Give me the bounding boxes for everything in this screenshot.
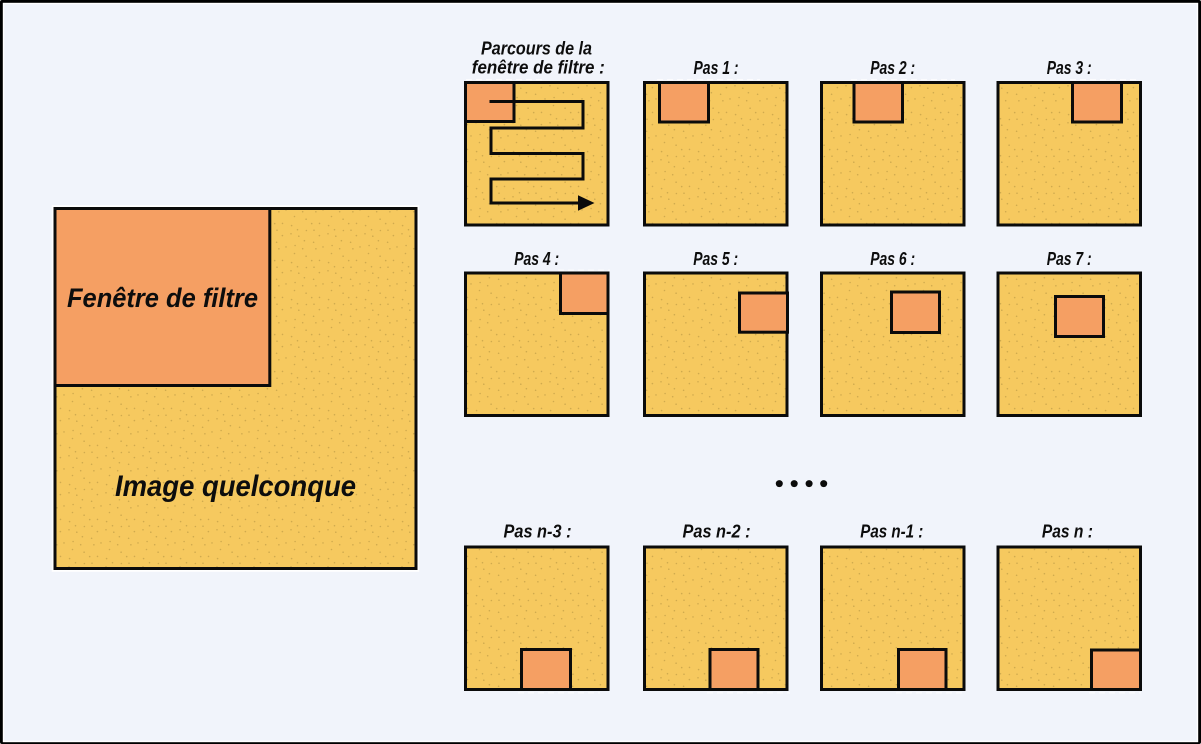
svg-text:Pas n-2 :: Pas n-2 : [683,521,751,542]
svg-text:Pas 3 :: Pas 3 : [1047,57,1092,78]
svg-text:Pas 7 :: Pas 7 : [1047,248,1092,269]
svg-text:Parcours de la: Parcours de la [481,38,592,59]
svg-text:Pas 4 :: Pas 4 : [514,248,559,269]
svg-text:fenêtre de filtre :: fenêtre de filtre : [472,57,605,78]
svg-text:Pas 1 :: Pas 1 : [694,57,739,78]
svg-text:Fenêtre de filtre: Fenêtre de filtre [67,283,258,313]
svg-text:Pas 6 :: Pas 6 : [870,248,915,269]
svg-text:Pas 2 :: Pas 2 : [870,57,915,78]
svg-text:Pas n :: Pas n : [1042,521,1093,542]
svg-text:Pas 5 :: Pas 5 : [693,248,738,269]
svg-text:Pas n-3 :: Pas n-3 : [504,521,572,542]
svg-text:Image quelconque: Image quelconque [115,470,356,503]
svg-text:Pas n-1 :: Pas n-1 : [860,521,923,542]
